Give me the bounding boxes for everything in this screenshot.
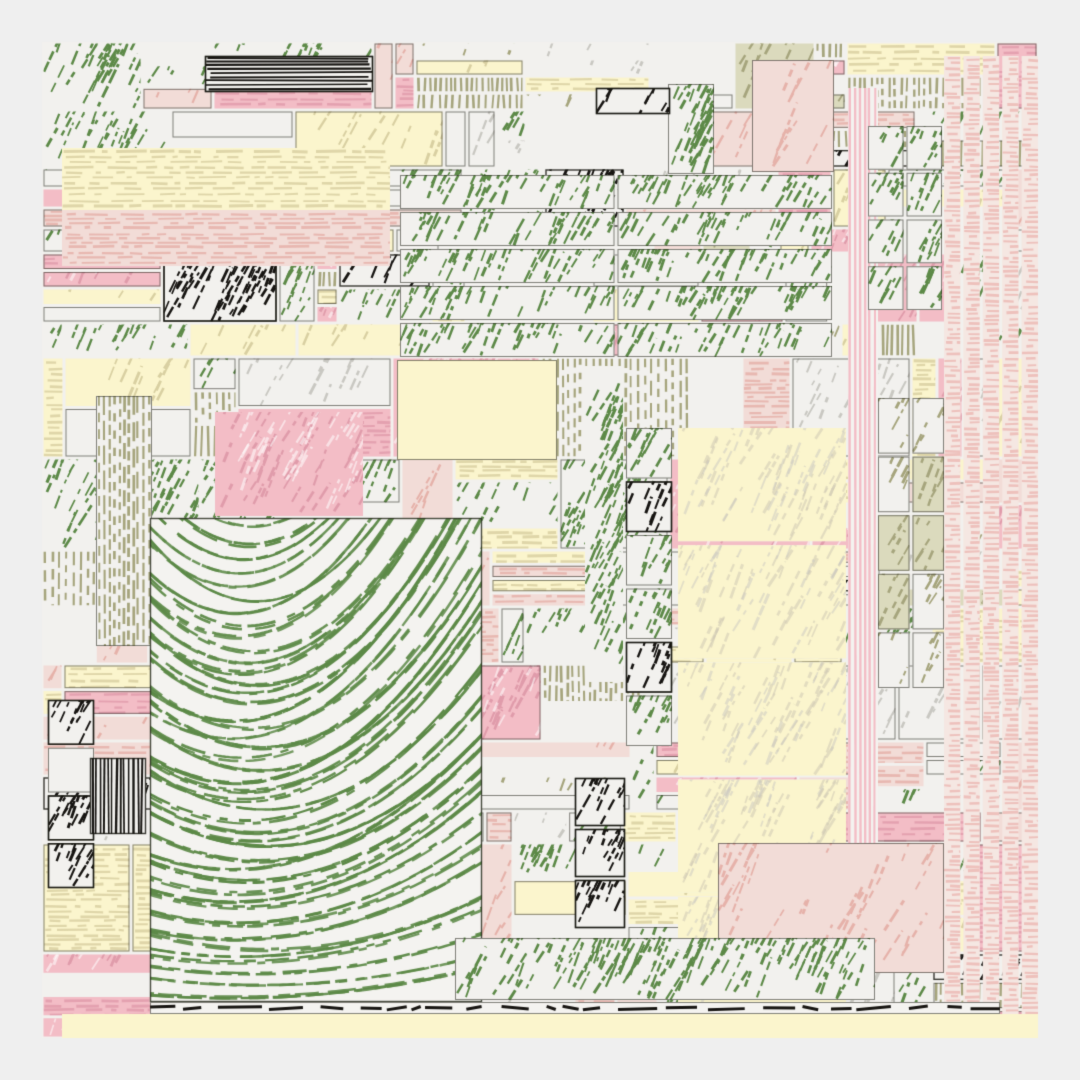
generative-artwork-canvas [0,0,1080,1080]
artwork-frame [0,0,1080,1080]
